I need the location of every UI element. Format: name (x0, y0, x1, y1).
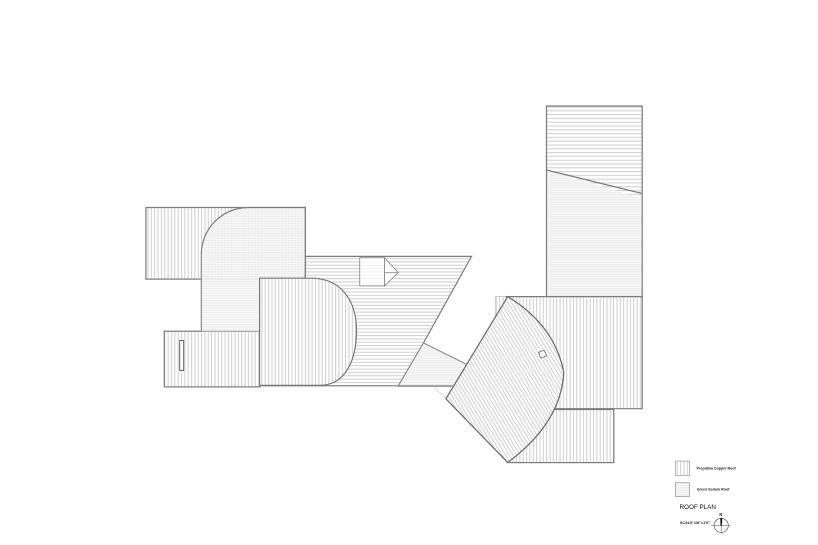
svg-text:Prepatina Copper Roof: Prepatina Copper Roof (697, 466, 737, 470)
svg-text:Green Sedum Roof: Green Sedum Roof (697, 487, 730, 491)
svg-text:ROOF PLAN: ROOF PLAN (680, 504, 717, 511)
svg-text:N: N (719, 512, 722, 517)
svg-text:SCALE 1/8"=1'0": SCALE 1/8"=1'0" (680, 521, 710, 525)
